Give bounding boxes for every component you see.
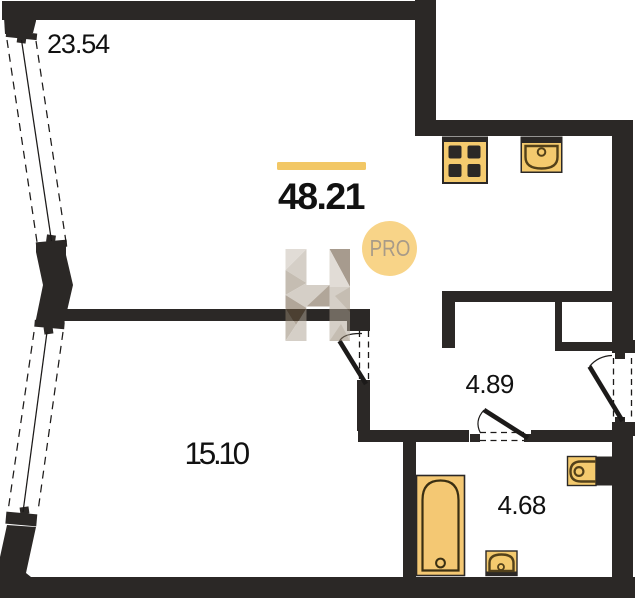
svg-text:48.21: 48.21: [278, 175, 365, 217]
svg-text:15.10: 15.10: [185, 435, 250, 471]
svg-text:4.68: 4.68: [498, 490, 546, 520]
svg-text:PRO: PRO: [370, 235, 411, 262]
svg-text:23.54: 23.54: [47, 29, 110, 59]
svg-text:4.89: 4.89: [466, 369, 514, 399]
